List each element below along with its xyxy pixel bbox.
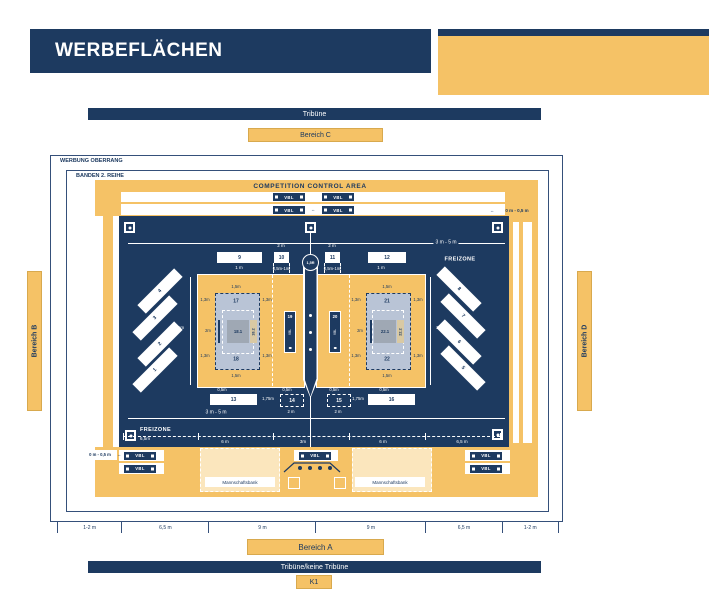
corner-marker-icon <box>305 222 316 233</box>
scale-segment: 9 m <box>209 522 316 533</box>
werbeflaechen-diagram: WERBEFLÄCHEN FLÄCHENFORMAT klein 2m x 1m… <box>0 0 709 600</box>
ad-box: 16 <box>368 394 415 405</box>
ad-box-number: 17 <box>233 300 239 305</box>
dim-label: 1,5m <box>382 374 391 378</box>
attack-line-right <box>349 275 350 386</box>
ad-box-number: 15 <box>336 398 342 404</box>
tribuene-bottom-bar: Tribüne/keine Tribüne <box>88 561 541 573</box>
scale-segment: 6,5 m <box>426 522 502 533</box>
ad-box-number: 18 <box>233 358 239 363</box>
ad-box-number: 10 <box>279 255 285 261</box>
legend-top-strip <box>438 29 709 36</box>
arrow-h-icon: ↔ <box>117 453 121 457</box>
bench-label-left: Mannschaftsbank <box>205 477 275 487</box>
dim-label: 3 m - 5 m <box>433 241 458 246</box>
referee-stand-circle: 1,5R <box>302 254 319 271</box>
dim-guide-line <box>340 263 341 273</box>
court-scale-label: 3m <box>300 440 306 445</box>
corner-marker-icon <box>124 222 135 233</box>
ad-strip-right-vertical-2 <box>523 222 532 443</box>
arena-yellow-left-strip <box>103 216 113 447</box>
ad-box: 18.2 <box>250 320 257 343</box>
dim-label: 3 m - 5 m <box>203 411 228 416</box>
dim-label: 2m <box>205 329 211 333</box>
penalty-square-icon <box>334 477 346 489</box>
dim-label: 0,5m-1m <box>324 267 341 271</box>
frame-inner-label: BANDEN 2. REIHE <box>76 173 124 179</box>
dim-label: 0,5m <box>379 388 388 392</box>
ad-box-number: 19 <box>285 314 295 319</box>
scale-label: 1-2 m <box>524 525 537 531</box>
bench-text: Mannschaftsbank <box>222 480 257 485</box>
vbl-box: VBL <box>124 465 156 473</box>
referee-table-icon <box>283 460 341 473</box>
ad-box-number: 7 <box>460 313 466 319</box>
tick <box>123 433 124 440</box>
ad-box-number: 14 <box>289 398 295 404</box>
ad-box-number: 3 <box>152 315 158 321</box>
dim-label: 0 m - 0,5 m <box>505 209 528 214</box>
page-title: WERBEFLÄCHEN <box>30 40 223 62</box>
dim-label: 2 m <box>277 244 285 249</box>
vbl-label: VBL <box>288 327 292 337</box>
ad-box-number: 11 <box>330 255 335 261</box>
scale-segment: 1-2 m <box>58 522 122 533</box>
dim-label: 1,3m <box>351 354 360 358</box>
dim-label: 1,5m <box>382 285 391 289</box>
dim-label: 1,3m <box>413 354 422 358</box>
k1-bar: K1 <box>296 575 332 589</box>
vbl-box: VBL <box>322 193 354 201</box>
ad-box: 12 <box>368 252 406 263</box>
dim-bracket <box>370 320 372 343</box>
dim-label: 1,3m <box>200 354 209 358</box>
radius-label: 1,5R <box>306 261 314 265</box>
arrow-h-icon: ↔ <box>490 209 494 213</box>
vbl-label: VBL <box>135 453 145 458</box>
scale-segment: 6,5 m <box>122 522 209 533</box>
penalty-square-icon <box>288 477 300 489</box>
ad-box: 11 <box>325 252 340 263</box>
ad-box-number: 18.2 <box>252 328 256 335</box>
ad-box: 22.1 <box>374 320 396 343</box>
vbl-label: VBL <box>333 327 337 337</box>
tribuene-bottom-label: Tribüne/keine Tribüne <box>281 564 348 571</box>
ad-box-number: 18.1 <box>234 329 242 334</box>
dim-label: 0 m - 0,5 m <box>89 453 111 457</box>
ad-box-dashed: 15 <box>327 394 351 407</box>
court-scale-label: 6,5m <box>140 437 150 442</box>
competition-control-area-label: COMPETITION CONTROL AREA <box>253 184 366 191</box>
dim-label: 1,75m <box>262 397 274 401</box>
bereich-c-bar: Bereich C <box>248 128 383 142</box>
dot-icon <box>334 347 337 350</box>
dim-label: 1,3m <box>351 298 360 302</box>
dim-label: 2 m <box>335 410 342 414</box>
frame-outer-label: WERBUNG OBERRANG <box>60 158 123 164</box>
ad-box-vertical: 20 VBL <box>329 311 341 353</box>
scale-label: 9 m <box>367 525 375 531</box>
vbl-box: VBL <box>470 452 502 460</box>
dim-label: 2 m <box>328 244 336 249</box>
tribuene-top-bar: Tribüne <box>88 108 541 120</box>
ad-box-number: 1 <box>152 367 158 373</box>
tribuene-top-label: Tribüne <box>303 111 326 118</box>
dim-label: 0,5m <box>217 388 226 392</box>
ad-box-number: 16 <box>389 397 395 403</box>
tick <box>198 433 199 440</box>
scale-label: 1-2 m <box>83 525 96 531</box>
bereich-d-bar: Bereich D <box>577 271 592 411</box>
ad-box-number: 6 <box>456 339 462 345</box>
ad-strip-right-vertical-1 <box>513 222 519 443</box>
tick <box>500 433 501 440</box>
bereich-a-bar: Bereich A <box>247 539 384 555</box>
dim-label: 2 m <box>288 410 295 414</box>
dim-label: 1 m <box>235 266 243 271</box>
ad-box-number: 9 <box>238 255 241 261</box>
dim-label: 1,75m <box>352 397 364 401</box>
ad-box-number: 8 <box>456 286 462 292</box>
court-measure-line <box>123 436 500 437</box>
scale-segment: 1-2 m <box>503 522 558 533</box>
dim-label: 0,5m <box>329 388 338 392</box>
corner-marker-icon <box>492 429 503 440</box>
court-scale-label: 6,5 m <box>456 440 467 445</box>
vbl-label: VBL <box>333 195 343 200</box>
bereich-b-label: Bereich B <box>31 325 38 358</box>
ad-box-dashed: 14 <box>280 394 304 407</box>
ad-box-number: 22.2 <box>399 328 403 335</box>
freizone-boundary-line-right <box>430 277 431 385</box>
ad-box-number: 13 <box>231 397 237 403</box>
page-title-bar: WERBEFLÄCHEN <box>30 29 431 73</box>
net-dot-icon <box>309 314 312 317</box>
vbl-label: VBL <box>481 466 491 471</box>
ad-box-number: 12 <box>384 255 390 261</box>
ad-box: 10 <box>274 252 289 263</box>
ad-strip-top-1 <box>121 192 505 202</box>
vbl-label: VBL <box>135 466 145 471</box>
ad-box-number: 20 <box>330 314 340 319</box>
freizone-label-top-right: FREIZONE <box>444 257 475 263</box>
vbl-box: VBL <box>273 206 305 214</box>
net-center-line-bottom <box>310 396 311 447</box>
scale-label: 6,5 m <box>458 525 471 531</box>
vbl-label: VBL <box>284 195 294 200</box>
scale-label: 9 m <box>258 525 266 531</box>
dot-icon <box>289 347 292 350</box>
vbl-box: VBL <box>124 452 156 460</box>
dim-label: 0,5m <box>282 388 291 392</box>
bereich-a-label: Bereich A <box>298 543 332 552</box>
tick <box>425 433 426 440</box>
dim-label: 1,5m <box>231 374 240 378</box>
bereich-b-bar: Bereich B <box>27 271 42 411</box>
attack-line-left <box>272 275 273 386</box>
vbl-label: VBL <box>284 208 294 213</box>
tick <box>273 433 274 440</box>
dim-guide-line <box>273 263 274 273</box>
ad-box-number: 2 <box>157 341 163 347</box>
bench-label-right: Mannschaftsbank <box>355 477 425 487</box>
bereich-d-label: Bereich D <box>581 325 588 358</box>
dim-guide-line <box>289 263 290 273</box>
dim-bracket <box>218 320 220 343</box>
bereich-c-label: Bereich C <box>300 132 331 139</box>
k1-label: K1 <box>310 579 319 586</box>
scale-label: 6,5 m <box>159 525 172 531</box>
scale-segment: 9 m <box>316 522 426 533</box>
net-center-line-top <box>310 233 311 254</box>
vbl-label: VBL <box>310 453 320 458</box>
dim-label: 1,3m <box>262 354 271 358</box>
bench-text: Mannschaftsbank <box>372 480 407 485</box>
ad-box-number: 22.1 <box>381 329 389 334</box>
ad-box-number: 4 <box>157 288 163 294</box>
net-dot-icon <box>309 331 312 334</box>
ad-box-number: 22 <box>384 358 390 363</box>
dim-label: 0,5m-1m <box>273 267 290 271</box>
ad-box-vertical: 19 VBL <box>284 311 296 353</box>
legend-body <box>438 36 709 95</box>
ad-box: 9 <box>217 252 262 263</box>
dim-label: 1,3m <box>200 298 209 302</box>
freizone-label-bottom-left: FREIZONE <box>140 428 171 434</box>
freizone-boundary-line-left <box>190 277 191 385</box>
court-scale-label: 6 m <box>379 440 387 445</box>
ad-box: 22.2 <box>397 320 404 343</box>
court-scale-label: 6 m <box>221 440 229 445</box>
dim-label: 1,3m <box>262 298 271 302</box>
net-dot-icon <box>309 348 312 351</box>
ad-box-number: 21 <box>384 300 390 305</box>
dim-label: 1,5m <box>231 285 240 289</box>
vbl-box: VBL <box>299 452 331 460</box>
dim-label: 1 m <box>377 266 385 271</box>
arrow-h-icon: ↔ <box>311 208 315 212</box>
vbl-label: VBL <box>333 208 343 213</box>
legend: FLÄCHENFORMAT klein 2m x 1m normal 3,4m … <box>438 29 709 95</box>
dim-label: 2m <box>357 329 363 333</box>
dim-guide-line <box>324 263 325 273</box>
tick <box>349 433 350 440</box>
ad-box-number: 5 <box>460 365 466 371</box>
bottom-scale: 1-2 m 6,5 m 9 m 9 m 6,5 m 1-2 m <box>57 522 559 533</box>
vbl-box: VBL <box>322 206 354 214</box>
vbl-box: VBL <box>470 465 502 473</box>
freizone-boundary-line-bottom <box>128 418 505 419</box>
ad-box: 13 <box>210 394 257 405</box>
vbl-label: VBL <box>481 453 491 458</box>
vbl-box: VBL <box>273 193 305 201</box>
corner-marker-icon <box>492 222 503 233</box>
ad-box: 18.1 <box>227 320 249 343</box>
dim-label: 1,3m <box>413 298 422 302</box>
